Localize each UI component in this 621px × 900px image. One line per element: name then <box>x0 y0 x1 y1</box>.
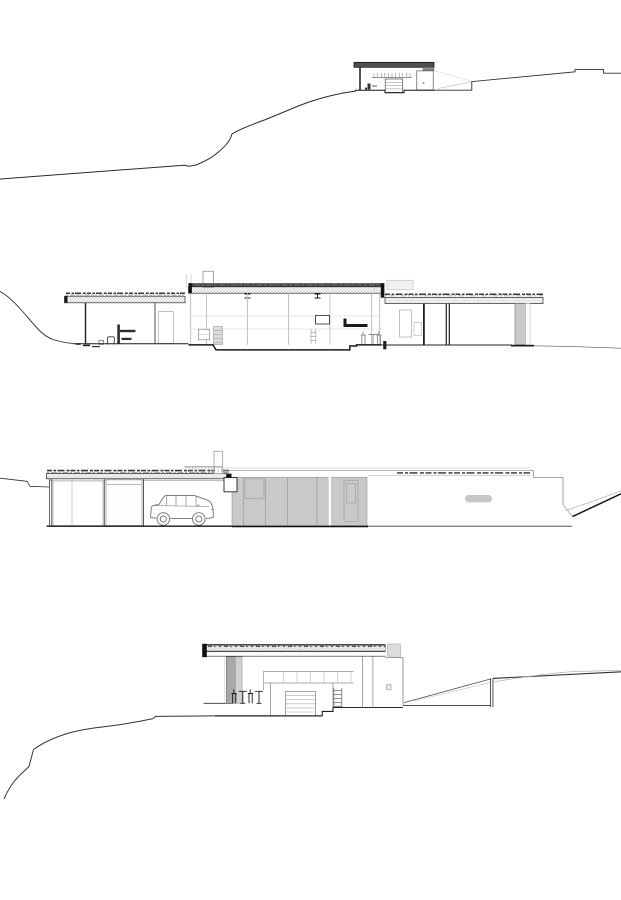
roof-pillar-ghost <box>526 304 531 345</box>
suv-front-wheel <box>193 513 206 526</box>
letterbox-slot-pill <box>465 495 492 502</box>
pavilion-door-handle-dot <box>423 82 425 84</box>
ghost-parapet-right <box>387 280 413 290</box>
gray-column-light <box>235 657 242 704</box>
terrace-step-c <box>92 346 100 347</box>
central-roof-slab <box>189 287 383 293</box>
solid-sliding-panel <box>106 480 142 526</box>
range-hood-vertical <box>344 319 347 328</box>
pavilion-right-wall <box>417 71 433 90</box>
right-wing-roof-slab <box>385 297 543 303</box>
suv-rear-wheel <box>157 513 170 526</box>
roof-pillar <box>515 304 526 345</box>
roof-left-cap <box>202 644 207 657</box>
chimney-ghost <box>388 644 401 656</box>
wall-slot-gap <box>329 477 332 526</box>
pavilion-fixture-c <box>365 88 367 90</box>
central-roof-left-cap <box>189 283 192 293</box>
bathroom-shelf-upper <box>120 330 135 332</box>
door-right-wing <box>400 310 412 337</box>
cut-wall-1 <box>423 304 425 345</box>
sidelite <box>414 323 422 336</box>
door-leaf <box>159 312 174 344</box>
range-hood-bar <box>347 324 368 327</box>
glass-bay <box>53 481 103 526</box>
cabinet-box-right <box>316 316 330 325</box>
pavilion-fixture-a <box>368 84 371 90</box>
bathroom-shelf-lower <box>122 338 132 340</box>
carport-roof-slab <box>47 474 227 479</box>
terrace-step-b <box>83 345 90 347</box>
gray-column-dark <box>226 657 235 704</box>
paper-background <box>0 0 621 900</box>
bathroom-partition <box>117 325 120 344</box>
left-wing-roof-slab <box>65 296 186 303</box>
wall-vent-square <box>387 685 391 690</box>
gray-panel-wall-2 <box>332 477 367 526</box>
drawing-sheet <box>0 0 621 900</box>
terrace-edge-dark <box>511 345 534 347</box>
pavilion-roof-slab <box>354 62 434 67</box>
pavilion-left-wall <box>359 67 361 90</box>
meter-box <box>224 478 237 492</box>
gray-panel-wall <box>232 477 329 526</box>
elevations-canvas <box>0 0 621 900</box>
pavilion-roof-right-block <box>423 67 434 71</box>
shelf-unit <box>214 327 223 345</box>
left-wing-roof-endcap <box>65 296 68 303</box>
central-roof-right-cap <box>381 283 385 298</box>
